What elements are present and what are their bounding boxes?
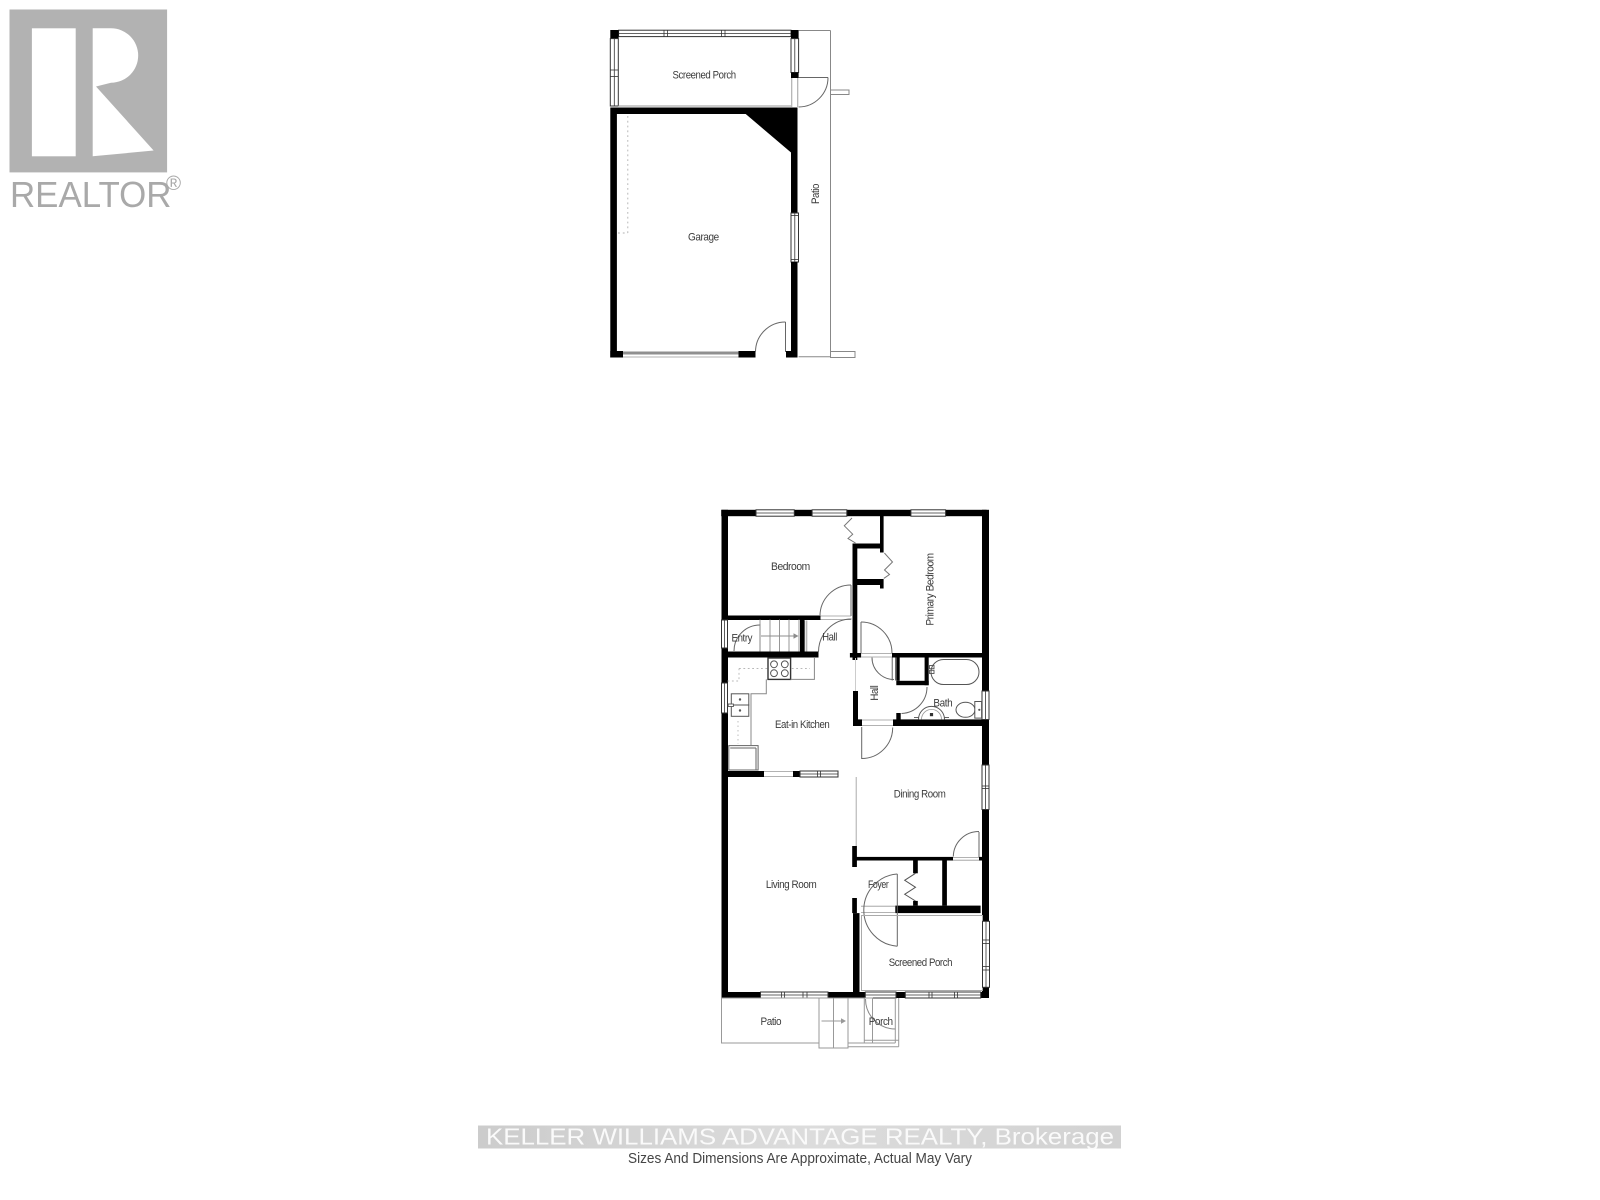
svg-text:Screened Porch: Screened Porch [673, 69, 737, 81]
svg-text:Bedroom: Bedroom [771, 561, 810, 573]
svg-text:Foyer: Foyer [868, 879, 889, 891]
svg-text:Bath: Bath [933, 697, 952, 709]
svg-text:Hall: Hall [869, 686, 881, 701]
svg-text:Garage: Garage [688, 231, 719, 243]
svg-text:Eat-in Kitchen: Eat-in Kitchen [775, 719, 830, 731]
svg-text:Patio: Patio [761, 1016, 782, 1028]
svg-text:Primary Bedroom: Primary Bedroom [924, 553, 936, 626]
svg-text:Dining Room: Dining Room [894, 789, 946, 801]
svg-text:Patio: Patio [810, 183, 822, 204]
svg-text:REALTOR: REALTOR [10, 174, 172, 215]
svg-text:®: ® [166, 172, 181, 195]
svg-text:Sizes And Dimensions Are Appro: Sizes And Dimensions Are Approximate, Ac… [628, 1151, 973, 1167]
svg-text:KELLER WILLIAMS ADVANTAGE REAL: KELLER WILLIAMS ADVANTAGE REALTY, Broker… [486, 1124, 1114, 1150]
svg-text:Screened Porch: Screened Porch [889, 957, 953, 969]
svg-text:Living Room: Living Room [766, 879, 817, 891]
svg-text:Entry: Entry [732, 632, 754, 644]
svg-text:Porch: Porch [869, 1016, 894, 1028]
svg-text:Hall: Hall [822, 632, 837, 644]
